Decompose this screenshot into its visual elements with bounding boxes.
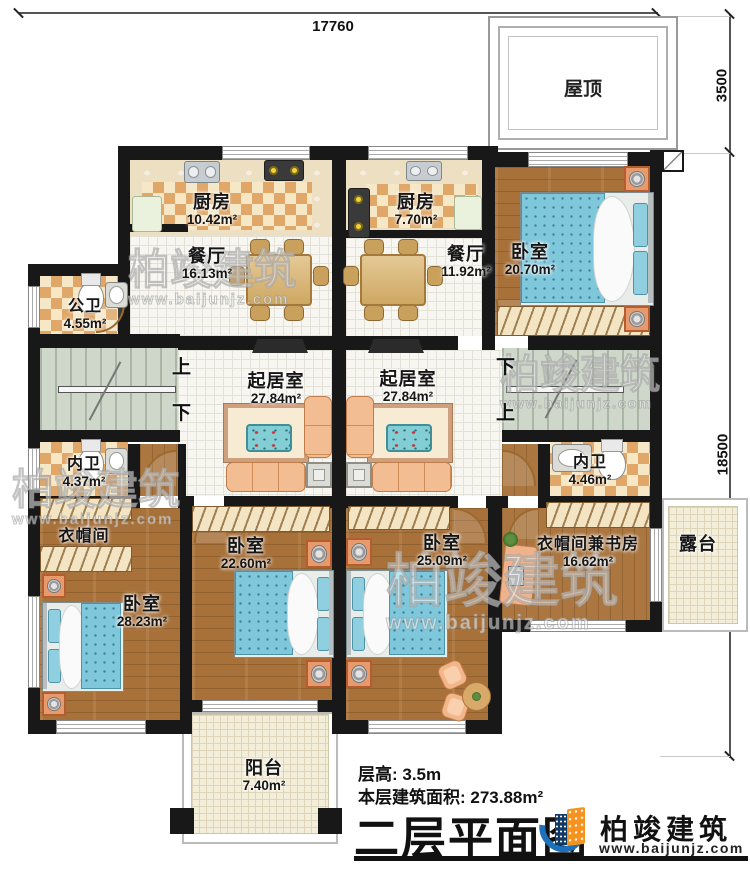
dimension-top-width: 17760: [293, 18, 373, 35]
wall: [486, 496, 508, 508]
label-cloak-study: 衣帽间兼书房 16.62m²: [508, 536, 668, 569]
nightstand: [306, 660, 332, 688]
floor-plan: 17760 3500 18500 屋顶: [0, 0, 750, 873]
wall: [186, 700, 202, 712]
wall: [28, 430, 180, 442]
wall: [528, 336, 662, 350]
terrace-floor: [668, 506, 738, 624]
wall: [318, 700, 332, 712]
window: [528, 152, 628, 167]
stove: [264, 160, 304, 181]
coffee-table: [386, 424, 432, 452]
label-bedroom-bottom-right: 卧室 25.09m²: [382, 533, 502, 568]
nightstand: [346, 660, 372, 688]
label-living-left: 起居室 27.84m²: [216, 371, 336, 406]
balcony-pier: [170, 808, 194, 834]
dimension-right-main: 18500: [715, 419, 732, 491]
label-living-right: 起居室 27.84m²: [348, 369, 468, 404]
dining-chair: [284, 305, 304, 321]
tv: [368, 339, 424, 353]
wall: [502, 430, 662, 442]
window: [368, 720, 466, 734]
wall: [346, 720, 368, 734]
extension-line: [660, 756, 730, 757]
dining-chair: [364, 305, 384, 321]
label-public-bath: 公卫 4.55m²: [35, 298, 135, 331]
floor-height-text: 层高: 3.5m: [358, 760, 441, 785]
nightstand: [624, 306, 650, 332]
sofa: [372, 462, 452, 492]
wall: [650, 602, 662, 632]
coffee-table: [246, 424, 292, 452]
sofa-chaise: [346, 396, 374, 458]
wall: [146, 720, 192, 734]
label-dining-left: 餐厅 16.13m²: [147, 246, 267, 281]
stairs-right-down-label: 下: [496, 352, 515, 379]
wall: [28, 334, 180, 348]
tv: [252, 339, 308, 353]
dimension-line-right: [729, 14, 731, 758]
flue-shaft: [662, 150, 684, 172]
closet-rack: [546, 502, 650, 528]
label-bedroom-bottom-left: 卧室 28.23m²: [82, 594, 202, 629]
window: [202, 700, 318, 712]
closet-rack: [40, 498, 132, 520]
end-table: [346, 462, 372, 488]
bed: [234, 570, 334, 658]
sofa: [226, 462, 306, 492]
window: [56, 720, 146, 734]
bed: [346, 570, 448, 658]
stair-handrail: [506, 386, 624, 393]
dining-chair: [313, 266, 329, 286]
window: [368, 146, 468, 160]
closet-rack: [192, 506, 330, 532]
roof-outline: 屋顶: [488, 16, 678, 150]
dimension-line-top: [18, 12, 658, 14]
label-balcony: 阳台 7.40m²: [204, 758, 324, 793]
dining-chair: [364, 239, 384, 255]
dimension-right-roof: 3500: [714, 56, 731, 116]
window: [222, 146, 310, 160]
dining-chair: [284, 239, 304, 255]
terrace-frame: [662, 498, 748, 632]
label-bedroom-bottom-mid: 卧室 22.60m²: [186, 536, 306, 571]
wall: [502, 620, 530, 632]
window: [530, 620, 626, 632]
balcony-pier: [318, 808, 342, 834]
brand-url[interactable]: www.baijunjz.com: [599, 840, 744, 856]
dining-chair: [343, 266, 359, 286]
nightstand: [346, 538, 372, 566]
nightstand: [306, 540, 332, 568]
label-terrace: 露台: [658, 534, 738, 554]
end-table: [306, 462, 332, 488]
label-kitchen-left: 厨房 10.42m²: [152, 192, 272, 227]
stair-handrail: [58, 386, 176, 393]
kitchen-sink: [406, 161, 442, 181]
label-bedroom-top-right: 卧室 20.70m²: [470, 242, 590, 277]
dining-chair: [250, 305, 270, 321]
wall: [650, 508, 662, 528]
wall: [466, 720, 502, 734]
round-table: [462, 682, 491, 711]
brand-logo-icon: [540, 801, 598, 859]
label-inner-bath-left: 内卫 4.37m²: [34, 456, 134, 489]
dining-chair: [398, 305, 418, 321]
logo-building-icon: [567, 807, 585, 846]
closet-rack: [348, 506, 450, 530]
wall-party: [332, 146, 346, 734]
label-cloakroom: 衣帽间: [24, 528, 144, 546]
nightstand: [624, 166, 650, 192]
roof-label: 屋顶: [490, 74, 676, 101]
stairs-right-up-label: 上: [496, 398, 515, 425]
wall: [28, 264, 130, 276]
label-kitchen-right: 厨房 7.70m²: [356, 192, 476, 227]
nightstand: [42, 574, 66, 598]
stairs-left-up-label: 上: [172, 352, 191, 379]
nightstand: [42, 692, 66, 716]
kitchen-sink: [184, 161, 220, 183]
wall: [28, 720, 56, 734]
label-inner-bath-right: 内卫 4.46m²: [540, 454, 640, 487]
logo-building-icon: [555, 814, 567, 845]
stairs-left-down-label: 下: [172, 398, 191, 425]
closet-rack: [40, 546, 132, 572]
window: [28, 596, 40, 688]
